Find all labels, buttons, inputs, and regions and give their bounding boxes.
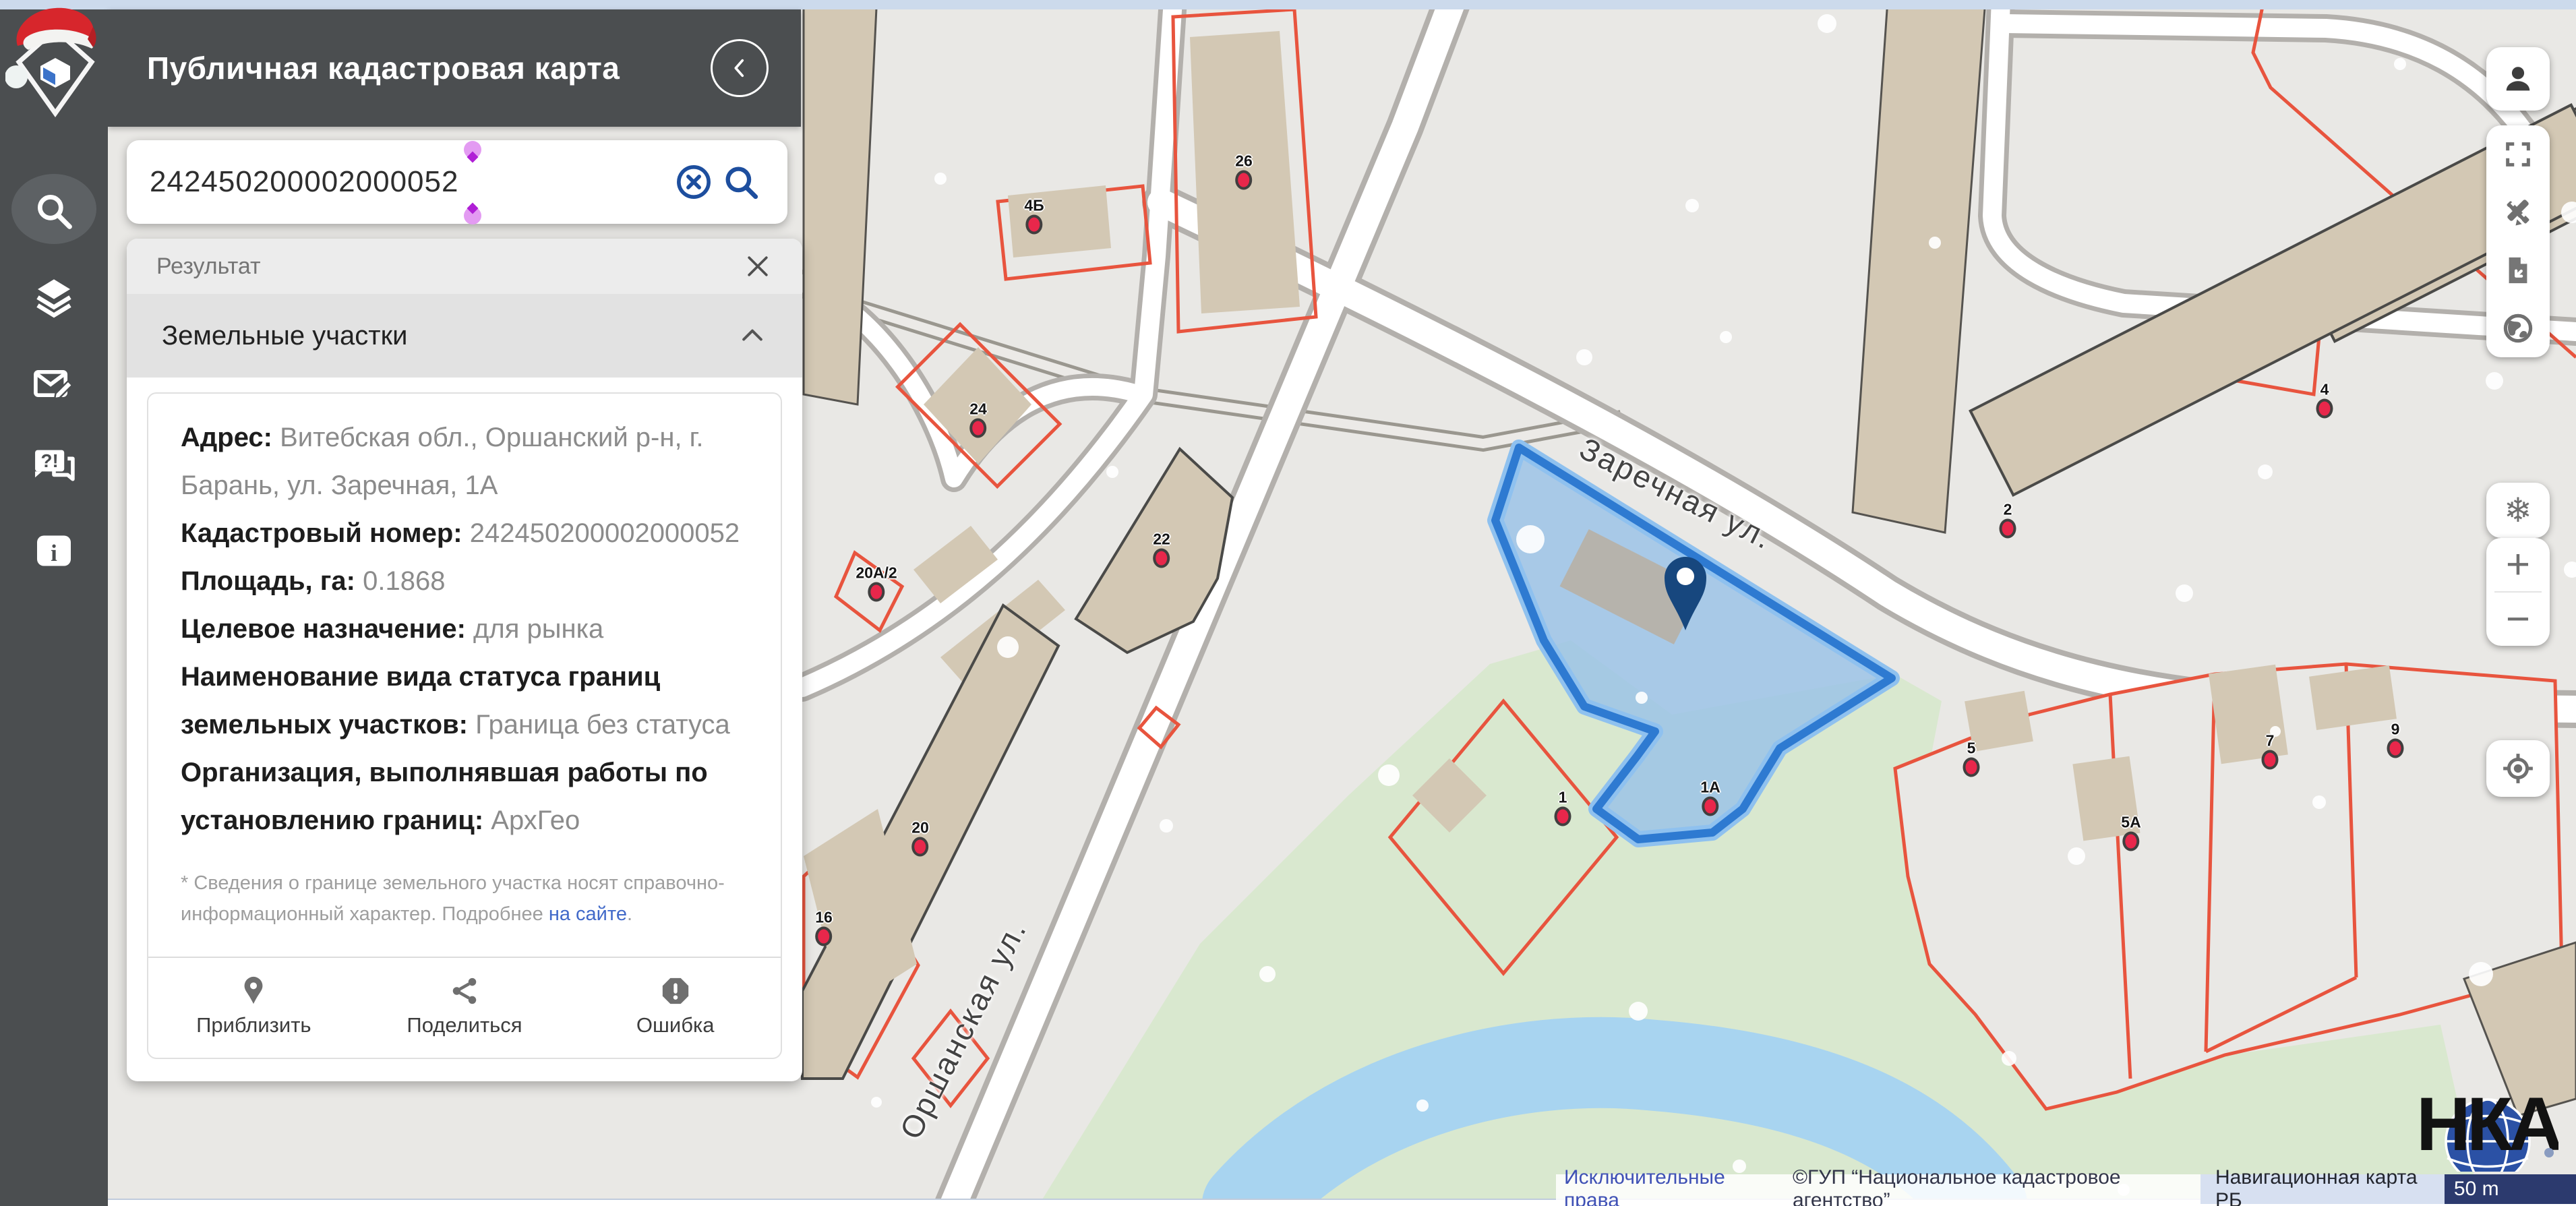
app-title: Публичная кадастровая карта <box>147 50 620 86</box>
house-marker-26[interactable]: 26 <box>1235 154 1253 190</box>
house-marker-4[interactable]: 4 <box>2316 382 2333 419</box>
house-number: 20А/2 <box>856 566 897 581</box>
sidebar-item-feedback[interactable] <box>0 344 108 423</box>
page-top-strip <box>0 0 2576 9</box>
text-selection-handle-bottom[interactable] <box>464 207 481 224</box>
collapse-panel-button[interactable] <box>711 39 769 97</box>
house-dot-icon <box>970 419 987 438</box>
house-marker-4Б[interactable]: 4Б <box>1024 198 1044 235</box>
scale-bar: 50 m <box>2445 1174 2576 1204</box>
plus-icon: + <box>2506 544 2530 586</box>
house-marker-1[interactable]: 1 <box>1555 790 1571 826</box>
sidebar-item-layers[interactable] <box>0 258 108 337</box>
section-title: Земельные участки <box>162 321 738 351</box>
locate-icon <box>2501 752 2535 785</box>
house-number: 4 <box>2320 382 2329 398</box>
fullscreen-icon <box>2503 139 2534 170</box>
zoom-in-button[interactable]: + <box>2486 538 2550 591</box>
house-dot-icon <box>816 927 833 946</box>
app-header: Публичная кадастровая карта <box>108 9 801 127</box>
chat-question-icon: ?! <box>32 445 76 489</box>
house-marker-9[interactable]: 9 <box>2387 722 2404 758</box>
share-icon <box>449 975 480 1006</box>
minus-icon: − <box>2506 599 2530 640</box>
house-marker-20А/2[interactable]: 20А/2 <box>856 566 897 602</box>
house-number: 24 <box>969 402 987 417</box>
house-number: 9 <box>2391 722 2400 737</box>
snow-layer-button[interactable]: ❄ <box>2486 483 2550 538</box>
detail-area: Площадь, га: 0.1868 <box>181 557 748 605</box>
house-number: 5 <box>1967 741 1976 756</box>
sidebar: ?! i <box>0 9 108 1206</box>
house-number: 5А <box>2121 815 2140 831</box>
search-bar: 242450200002000052 <box>127 140 787 224</box>
house-marker-2[interactable]: 2 <box>2000 502 2016 539</box>
measure-icon <box>2502 196 2534 229</box>
clear-search-button[interactable] <box>670 158 717 206</box>
house-marker-5А[interactable]: 5А <box>2121 815 2140 851</box>
sidebar-item-questions[interactable]: ?! <box>0 427 108 507</box>
sidebar-item-search[interactable] <box>0 171 108 251</box>
search-input[interactable]: 242450200002000052 <box>150 165 458 199</box>
detail-address: Адрес: Витебская обл., Оршанский р-н, г.… <box>181 414 748 510</box>
house-dot-icon <box>2387 739 2404 758</box>
close-icon[interactable] <box>743 251 773 281</box>
site-link[interactable]: на сайте <box>549 903 627 925</box>
house-marker-16[interactable]: 16 <box>815 910 833 946</box>
house-number: 2 <box>2004 502 2012 518</box>
app-root: { "app": { "title": "Публичная кадастров… <box>0 0 2576 1206</box>
detail-cadastral-number: Кадастровый номер: 242450200002000052 <box>181 510 748 557</box>
mail-edit-icon <box>32 362 76 405</box>
house-number: 20 <box>911 820 929 836</box>
nav-map-text: Навигационная карта РБ <box>2200 1174 2445 1204</box>
nca-agency-logo: НКА <box>2417 1077 2558 1172</box>
house-dot-icon <box>1555 807 1571 826</box>
house-dot-icon <box>2000 519 2016 539</box>
file-export-icon <box>2503 255 2534 286</box>
house-marker-7[interactable]: 7 <box>2262 733 2279 770</box>
globe-icon <box>2502 312 2534 344</box>
map-attribution: Исключительные права ©ГУП “Национальное … <box>1556 1174 2576 1204</box>
house-dot-icon <box>1702 797 1719 816</box>
house-number: 22 <box>1153 532 1170 547</box>
submit-search-button[interactable] <box>717 158 765 206</box>
map-tools-group <box>2486 125 2550 357</box>
chevron-left-icon <box>728 57 751 80</box>
zoom-out-button[interactable]: − <box>2486 593 2550 646</box>
detail-purpose: Целевое назначение: для рынка <box>181 605 748 653</box>
locate-me-button[interactable] <box>2486 740 2550 797</box>
house-number: 7 <box>2266 733 2275 749</box>
zoom-controls: + − <box>2486 538 2550 646</box>
info-icon: i <box>34 531 74 571</box>
person-icon <box>2500 61 2536 96</box>
measure-button[interactable] <box>2486 183 2550 241</box>
house-number: 4Б <box>1024 198 1044 214</box>
svg-text:i: i <box>51 540 57 566</box>
globe-button[interactable] <box>2486 299 2550 357</box>
snowflake-icon: ❄ <box>2504 491 2532 530</box>
house-number: 16 <box>815 910 833 926</box>
exclusive-rights-link[interactable]: Исключительные права <box>1556 1174 1779 1204</box>
house-number: 1А <box>1700 780 1720 795</box>
disclaimer-text: * Сведения о границе земельного участка … <box>148 845 781 930</box>
house-dot-icon <box>1963 758 1980 777</box>
house-marker-5[interactable]: 5 <box>1963 741 1980 777</box>
svg-text:НКА: НКА <box>2417 1082 2558 1166</box>
house-number: 26 <box>1235 154 1253 169</box>
fullscreen-button[interactable] <box>2486 125 2550 183</box>
zoom-to-parcel-button[interactable]: Приблизить <box>148 975 359 1037</box>
copyright-text: ©ГУП “Национальное кадастровое агентство… <box>1779 1174 2200 1204</box>
house-dot-icon <box>868 582 885 602</box>
clear-circle-icon <box>675 163 713 201</box>
pin-icon <box>238 975 269 1006</box>
actions-row: Приблизить Поделиться Ошибка <box>148 957 781 1058</box>
error-icon <box>660 975 691 1006</box>
search-submit-icon <box>721 162 760 202</box>
house-dot-icon <box>912 837 929 857</box>
house-dot-icon <box>1154 549 1170 568</box>
report-error-button[interactable]: Ошибка <box>570 975 781 1037</box>
house-dot-icon <box>2316 399 2333 419</box>
user-account-button[interactable] <box>2486 47 2550 111</box>
layers-icon <box>32 276 76 319</box>
result-panel-header: Результат <box>127 239 802 294</box>
result-panel-title: Результат <box>156 253 743 280</box>
svg-text:?!: ?! <box>40 450 58 471</box>
house-marker-22[interactable]: 22 <box>1153 532 1170 568</box>
search-icon <box>33 190 75 232</box>
result-panel: Результат Земельные участки Адрес: Витеб… <box>127 239 802 1081</box>
house-dot-icon <box>1025 215 1042 235</box>
detail-organization: Организация, выполнявшая работы по устан… <box>181 749 748 845</box>
sidebar-item-info[interactable]: i <box>0 511 108 591</box>
parcel-details-card: Адрес: Витебская обл., Оршанский р-н, г.… <box>147 392 782 1059</box>
export-button[interactable] <box>2486 241 2550 299</box>
house-marker-24[interactable]: 24 <box>969 402 987 438</box>
house-marker-1А[interactable]: 1А <box>1700 780 1720 816</box>
text-selection-handle-top[interactable] <box>464 141 481 158</box>
detail-border-status: Наименование вида статуса границ земельн… <box>181 653 748 749</box>
house-marker-20[interactable]: 20 <box>911 820 929 857</box>
house-number: 1 <box>1559 790 1567 806</box>
site-logo-santa[interactable] <box>5 4 105 120</box>
chevron-up-icon <box>738 321 767 351</box>
house-dot-icon <box>1236 171 1253 190</box>
house-dot-icon <box>2262 750 2279 770</box>
house-dot-icon <box>2123 832 2140 851</box>
section-land-parcels[interactable]: Земельные участки <box>127 294 802 378</box>
share-button[interactable]: Поделиться <box>359 975 570 1037</box>
